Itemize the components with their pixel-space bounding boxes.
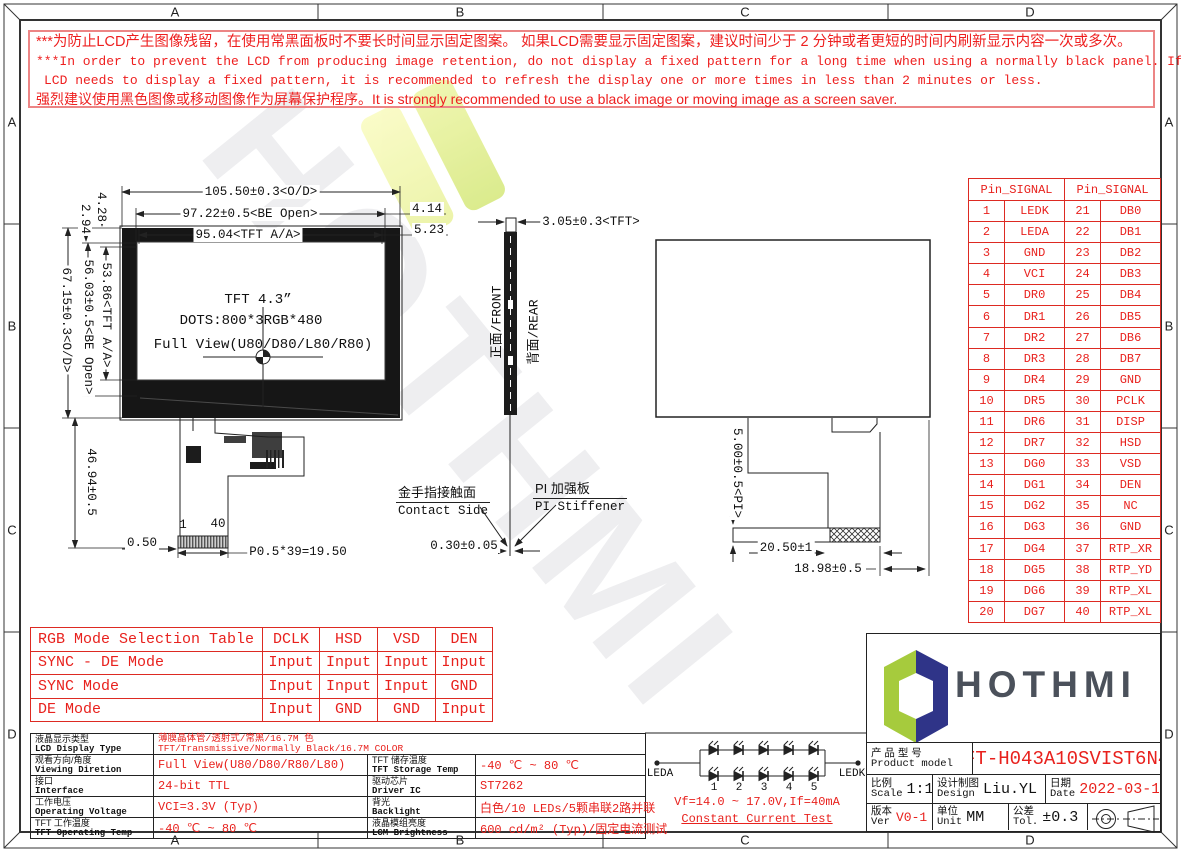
pin-signal: DB2 bbox=[1101, 243, 1161, 264]
design-label-en: Design bbox=[937, 789, 979, 800]
rgb-mode-selection-table: RGB Mode Selection Table DCLK HSD VSD DE… bbox=[30, 627, 493, 722]
pin-no: 34 bbox=[1065, 475, 1101, 496]
spec-row: 接口 Interface 24-bit TTL 驱动芯片 Driver IC S… bbox=[31, 776, 646, 797]
pin-no: 17 bbox=[969, 538, 1005, 559]
spec-label: 观看方向/角度 Viewing Diretion bbox=[31, 755, 154, 776]
zone-label-right-c: C bbox=[1164, 523, 1173, 538]
spec-label-en: TFT Storage Temp bbox=[372, 765, 475, 775]
dim-be-height: 56.03±0.5<BE Open> bbox=[81, 257, 95, 396]
pin-number-last: 40 bbox=[208, 517, 227, 531]
scale-value: 1:1 bbox=[907, 781, 933, 798]
dim-gap-414: 4.14 bbox=[410, 202, 444, 216]
pin-signal: DB3 bbox=[1101, 264, 1161, 285]
led-number: 2 bbox=[736, 782, 743, 794]
rgb-cell: GND bbox=[436, 675, 493, 699]
pin-row: 13DG033VSD bbox=[969, 454, 1161, 475]
pin-no: 2 bbox=[969, 222, 1005, 243]
unit-label-en: Unit bbox=[937, 817, 962, 828]
led-number: 4 bbox=[786, 782, 793, 794]
dim-fpc-edge: 0.50 bbox=[125, 536, 159, 550]
spec-value: 600 cd/m² (Typ)/固定电流测试 bbox=[476, 818, 646, 839]
zone-label-top-c: C bbox=[740, 5, 749, 20]
dim-od-width: 105.50±0.3<O/D> bbox=[203, 185, 320, 199]
panel-view-text: Full View(U80/D80/L80/R80) bbox=[152, 337, 374, 353]
spec-table: 液晶显示类型 LCD Display Type 薄膜晶体管/透射式/常黑/16.… bbox=[30, 733, 646, 839]
pin-signal: DB5 bbox=[1101, 306, 1161, 327]
spec-row: 观看方向/角度 Viewing Diretion Full View(U80/D… bbox=[31, 755, 646, 776]
pin-row: 9DR429GND bbox=[969, 369, 1161, 390]
spec-label-en: Backlight bbox=[372, 807, 475, 817]
pin-signal: DR2 bbox=[1005, 327, 1065, 348]
rgb-row: DE Mode Input GND GND Input bbox=[31, 698, 493, 722]
warning-line-4: 强烈建议使用黑色图像或移动图像作为屏幕保护程序。It is strongly r… bbox=[36, 90, 1147, 109]
spec-label: 工作电压 Operating Voltage bbox=[31, 797, 154, 818]
pin-no: 37 bbox=[1065, 538, 1101, 559]
rgb-col-vsd: VSD bbox=[378, 628, 436, 652]
spec-label-cn: 工作电压 bbox=[35, 797, 153, 807]
spec-label-en: LCD Display Type bbox=[35, 744, 153, 754]
pin-no: 5 bbox=[969, 285, 1005, 306]
image-retention-warning: ***为防止LCD产生图像残留，在使用常黑面板时不要长时间显示固定图案。 如果L… bbox=[28, 30, 1155, 108]
scale-label-en: Scale bbox=[871, 789, 903, 800]
rgb-col-hsd: HSD bbox=[320, 628, 378, 652]
pin-signal: DISP bbox=[1101, 411, 1161, 432]
pi-stiffener-en: PI Stiffener bbox=[533, 499, 627, 514]
pin-signal: RTP_XL bbox=[1101, 580, 1161, 601]
rgb-cell: Input bbox=[436, 651, 493, 675]
led-vf-spec: Vf=14.0 ~ 17.0V,If=40mA bbox=[674, 795, 840, 809]
zone-label-left-b: B bbox=[8, 319, 17, 334]
panel-size-text: TFT 4.3” bbox=[222, 292, 293, 308]
pin-table-header: Pin_SIGNAL Pin_SIGNAL bbox=[969, 179, 1161, 201]
spec-label-en: Viewing Diretion bbox=[35, 765, 153, 775]
rgb-cell: Input bbox=[436, 698, 493, 722]
spec-label-en: Interface bbox=[35, 786, 153, 796]
spec-row: TFT 工作温度 TFT Operating Temp -40 ℃ ~ 80 ℃… bbox=[31, 818, 646, 839]
unit-value: MM bbox=[966, 809, 984, 826]
pin-no: 35 bbox=[1065, 496, 1101, 517]
spec-label-cn: 接口 bbox=[35, 776, 153, 786]
spec-label-en: TFT Operating Temp bbox=[35, 828, 153, 838]
rgb-mode-name: DE Mode bbox=[31, 698, 263, 722]
pin-no: 16 bbox=[969, 517, 1005, 538]
dim-pi-height: 5.00±0.5<PI> bbox=[730, 426, 744, 520]
zone-label-left-c: C bbox=[7, 523, 16, 538]
pin-no: 13 bbox=[969, 454, 1005, 475]
spec-label: TFT 工作温度 TFT Operating Temp bbox=[31, 818, 154, 839]
tolerance-label-en: Tol. bbox=[1013, 817, 1038, 828]
pin-signal: DR4 bbox=[1005, 369, 1065, 390]
pin-no: 7 bbox=[969, 327, 1005, 348]
pin-no: 6 bbox=[969, 306, 1005, 327]
spec-label: 液晶显示类型 LCD Display Type bbox=[31, 734, 154, 755]
spec-label-cn: 观看方向/角度 bbox=[35, 755, 153, 765]
spec-label-cn: 液晶模组亮度 bbox=[372, 818, 475, 828]
pin-row: 2LEDA22DB1 bbox=[969, 222, 1161, 243]
pin-no: 36 bbox=[1065, 517, 1101, 538]
spec-row: 液晶显示类型 LCD Display Type 薄膜晶体管/透射式/常黑/16.… bbox=[31, 734, 646, 755]
spec-label-cn: TFT 工作温度 bbox=[35, 818, 153, 828]
unit-cell: 单位 Unit MM bbox=[933, 804, 1009, 830]
dim-fpc-width: 18.98±0.5 bbox=[792, 562, 864, 576]
pin-signal: DR6 bbox=[1005, 411, 1065, 432]
spec-label: 液晶模组亮度 LCM Brightness bbox=[368, 818, 476, 839]
zone-label-left-a: A bbox=[8, 115, 17, 130]
pin-signal: DG1 bbox=[1005, 475, 1065, 496]
date-value: 2022-03-10 bbox=[1079, 781, 1159, 798]
panel-dots-text: DOTS:800*3RGB*480 bbox=[178, 313, 325, 329]
spec-label: 驱动芯片 Driver IC bbox=[368, 776, 476, 797]
spec-label-cn: 液晶显示类型 bbox=[35, 734, 153, 744]
pin-signal: DG0 bbox=[1005, 454, 1065, 475]
led-number: 3 bbox=[761, 782, 768, 794]
pin-signal: DG6 bbox=[1005, 580, 1065, 601]
date-cell: 日期 Date 2022-03-10 bbox=[1046, 775, 1159, 803]
spec-label-en: Operating Voltage bbox=[35, 807, 153, 817]
rgb-cell: Input bbox=[320, 651, 378, 675]
spec-label-cn: TFT 储存温度 bbox=[372, 755, 475, 765]
pin-row: 4VCI24DB3 bbox=[969, 264, 1161, 285]
pin-signal: DB1 bbox=[1101, 222, 1161, 243]
pin-signal: DR5 bbox=[1005, 390, 1065, 411]
pin-row: 18DG538RTP_YD bbox=[969, 559, 1161, 580]
warning-line-1: ***为防止LCD产生图像残留，在使用常黑面板时不要长时间显示固定图案。 如果L… bbox=[36, 33, 1147, 52]
pin-signal: DG7 bbox=[1005, 601, 1065, 622]
pin-signal: DB0 bbox=[1101, 201, 1161, 222]
designer-value: Liu.YL bbox=[983, 781, 1037, 798]
pin-row: 14DG134DEN bbox=[969, 475, 1161, 496]
spec-value-en: TFT/Transmissive/Normally Black/16.7M CO… bbox=[158, 744, 645, 754]
date-label-en: Date bbox=[1050, 789, 1075, 800]
pi-stiffener-cn: PI 加强板 bbox=[533, 478, 627, 499]
pin-no: 14 bbox=[969, 475, 1005, 496]
pi-stiffener-callout: PI 加强板 PI Stiffener bbox=[533, 478, 627, 514]
pin-no: 31 bbox=[1065, 411, 1101, 432]
rgb-col-dclk: DCLK bbox=[263, 628, 320, 652]
pin-no: 20 bbox=[969, 601, 1005, 622]
zone-label-top-d: D bbox=[1025, 5, 1034, 20]
pin-no: 8 bbox=[969, 348, 1005, 369]
spec-label-cn: 背光 bbox=[372, 797, 475, 807]
spec-value: ST7262 bbox=[476, 776, 646, 797]
pin-signal: DB6 bbox=[1101, 327, 1161, 348]
spec-value: Full View(U80/D80/R80/L80) bbox=[154, 755, 368, 776]
pin-row: 8DR328DB7 bbox=[969, 348, 1161, 369]
pin-signal: DB4 bbox=[1101, 285, 1161, 306]
dim-aa-height: 53.86<TFT A/A> bbox=[99, 260, 113, 369]
dim-aa-width: 95.04<TFT A/A> bbox=[193, 228, 302, 242]
scale-cell: 比例 Scale 1:1 bbox=[867, 775, 933, 803]
pin-row: 15DG235NC bbox=[969, 496, 1161, 517]
pin-row: 16DG336GND bbox=[969, 517, 1161, 538]
side-rear-label: 背面/REAR bbox=[523, 297, 542, 366]
pin-signal: LEDK bbox=[1005, 201, 1065, 222]
pin-signal: DR3 bbox=[1005, 348, 1065, 369]
rgb-cell: Input bbox=[378, 675, 436, 699]
pin-row: 19DG639RTP_XL bbox=[969, 580, 1161, 601]
rgb-header-row: RGB Mode Selection Table DCLK HSD VSD DE… bbox=[31, 628, 493, 652]
projection-symbol-cell bbox=[1088, 804, 1160, 830]
spec-value: -40 ℃ ~ 80 ℃ bbox=[476, 755, 646, 776]
version-label-en: Ver bbox=[871, 817, 892, 828]
spec-row: 工作电压 Operating Voltage VCI=3.3V (Typ) 背光… bbox=[31, 797, 646, 818]
rgb-cell: Input bbox=[263, 651, 320, 675]
product-model-label-cell: 产 品 型 号 Product model bbox=[867, 743, 973, 774]
pin-signal-table: Pin_SIGNAL Pin_SIGNAL 1LEDK21DB0 2LEDA22… bbox=[968, 178, 1161, 623]
pin-no: 12 bbox=[969, 433, 1005, 454]
zone-label-bottom-d: D bbox=[1025, 833, 1034, 848]
spec-label-en: LCM Brightness bbox=[372, 828, 475, 838]
product-label-cn: 产 品 型 号 bbox=[871, 748, 953, 759]
rgb-row: SYNC Mode Input Input Input GND bbox=[31, 675, 493, 699]
zone-label-right-b: B bbox=[1165, 319, 1174, 334]
rgb-col-den: DEN bbox=[436, 628, 493, 652]
spec-label: TFT 储存温度 TFT Storage Temp bbox=[368, 755, 476, 776]
rgb-mode-name: SYNC Mode bbox=[31, 675, 263, 699]
pin-no: 27 bbox=[1065, 327, 1101, 348]
rgb-table-title: RGB Mode Selection Table bbox=[31, 628, 263, 652]
pin-signal: DB7 bbox=[1101, 348, 1161, 369]
tolerance-cell: 公差 Tol. ±0.3 bbox=[1009, 804, 1088, 830]
pin-no: 23 bbox=[1065, 243, 1101, 264]
pin-signal: RTP_XL bbox=[1101, 601, 1161, 622]
pin-no: 30 bbox=[1065, 390, 1101, 411]
version-cell: 版本 Ver V0-1 bbox=[867, 804, 933, 830]
product-label-en: Product model bbox=[871, 759, 953, 770]
rgb-cell: Input bbox=[263, 698, 320, 722]
pin-signal: RTP_YD bbox=[1101, 559, 1161, 580]
spec-value: 白色/10 LEDs/5颗串联2路并联 bbox=[476, 797, 646, 818]
pin-no: 15 bbox=[969, 496, 1005, 517]
rgb-cell: Input bbox=[378, 651, 436, 675]
led-circuit bbox=[645, 733, 866, 781]
pin-row: 10DR530PCLK bbox=[969, 390, 1161, 411]
pin-no: 26 bbox=[1065, 306, 1101, 327]
product-model-value: TFT-H043A10SVIST6N40 bbox=[973, 748, 1160, 770]
spec-value: -40 ℃ ~ 80 ℃ bbox=[154, 818, 368, 839]
pin-row: 17DG437RTP_XR bbox=[969, 538, 1161, 559]
spec-value: 24-bit TTL bbox=[154, 776, 368, 797]
zone-label-top-b: B bbox=[456, 5, 465, 20]
pin-no: 1 bbox=[969, 201, 1005, 222]
pin-no: 11 bbox=[969, 411, 1005, 432]
contact-side-cn: 金手指接触面 bbox=[396, 482, 490, 503]
rgb-mode-name: SYNC - DE Mode bbox=[31, 651, 263, 675]
led-number: 5 bbox=[811, 782, 818, 794]
pin-table-header-right: Pin_SIGNAL bbox=[1065, 179, 1161, 201]
pin-no: 21 bbox=[1065, 201, 1101, 222]
pin-signal: RTP_XR bbox=[1101, 538, 1161, 559]
zone-label-right-a: A bbox=[1165, 115, 1174, 130]
pin-signal: GND bbox=[1101, 517, 1161, 538]
spec-value: 薄膜晶体管/透射式/常黑/16.7M 色 TFT/Transmissive/No… bbox=[154, 734, 646, 755]
pin-signal: DG4 bbox=[1005, 538, 1065, 559]
dim-gap-428: 4.28 bbox=[94, 190, 108, 224]
pin-no: 24 bbox=[1065, 264, 1101, 285]
spec-label: 接口 Interface bbox=[31, 776, 154, 797]
pin-row: 6DR126DB5 bbox=[969, 306, 1161, 327]
pin-signal: DR7 bbox=[1005, 433, 1065, 454]
spec-label: 背光 Backlight bbox=[368, 797, 476, 818]
dim-tft-thickness: 3.05±0.3<TFT> bbox=[540, 215, 642, 229]
zone-label-bottom-c: C bbox=[740, 833, 749, 848]
warning-line-2: ***In order to prevent the LCD from prod… bbox=[36, 52, 1147, 71]
dim-fpc-length: 46.94±0.5 bbox=[84, 446, 98, 518]
rgb-cell: GND bbox=[320, 698, 378, 722]
pin-signal: NC bbox=[1101, 496, 1161, 517]
spec-label-cn: 驱动芯片 bbox=[372, 776, 475, 786]
dim-fpc-thickness: 0.30±0.05 bbox=[428, 539, 500, 553]
pin-no: 28 bbox=[1065, 348, 1101, 369]
version-value: V0-1 bbox=[896, 810, 927, 825]
pin-no: 40 bbox=[1065, 601, 1101, 622]
led-number: 1 bbox=[711, 782, 718, 794]
pin-row: 1LEDK21DB0 bbox=[969, 201, 1161, 222]
pin-signal: DR0 bbox=[1005, 285, 1065, 306]
pin-signal: GND bbox=[1005, 243, 1065, 264]
pin-no: 33 bbox=[1065, 454, 1101, 475]
pin-signal: VCI bbox=[1005, 264, 1065, 285]
spec-value: VCI=3.3V (Typ) bbox=[154, 797, 368, 818]
pin-signal: GND bbox=[1101, 369, 1161, 390]
dim-pin-pitch: P0.5*39=19.50 bbox=[247, 545, 349, 559]
pin-signal: HSD bbox=[1101, 433, 1161, 454]
rear-view bbox=[656, 240, 930, 576]
warning-line-3: LCD needs to display a fixed pattern, it… bbox=[36, 71, 1147, 90]
pin-no: 4 bbox=[969, 264, 1005, 285]
product-model-value-cell: TFT-H043A10SVIST6N40 bbox=[973, 743, 1160, 774]
pin-no: 9 bbox=[969, 369, 1005, 390]
design-cell: 设计制图 Design Liu.YL bbox=[933, 775, 1046, 803]
spec-label-en: Driver IC bbox=[372, 786, 475, 796]
pin-no: 10 bbox=[969, 390, 1005, 411]
dim-be-width: 97.22±0.5<BE Open> bbox=[180, 207, 319, 221]
pin-no: 29 bbox=[1065, 369, 1101, 390]
pin-no: 38 bbox=[1065, 559, 1101, 580]
pin-no: 18 bbox=[969, 559, 1005, 580]
pin-signal: DG5 bbox=[1005, 559, 1065, 580]
dim-pi-width: 20.50±1 bbox=[758, 541, 815, 555]
pin-signal: LEDA bbox=[1005, 222, 1065, 243]
pin-no: 32 bbox=[1065, 433, 1101, 454]
pin-table-header-left: Pin_SIGNAL bbox=[969, 179, 1065, 201]
led-cathode-label: LEDK bbox=[839, 768, 865, 780]
pin-signal: DEN bbox=[1101, 475, 1161, 496]
logo-cell: HOTHMI bbox=[867, 634, 1160, 743]
side-front-label: 正面/FRONT bbox=[486, 284, 505, 361]
dim-gap-294: 2.94 bbox=[78, 202, 92, 236]
zone-label-right-d: D bbox=[1164, 727, 1173, 742]
pin-number-first: 1 bbox=[177, 518, 189, 532]
zone-label-top-a: A bbox=[171, 5, 180, 20]
zone-label-left-d: D bbox=[7, 727, 16, 742]
dim-gap-523: 5.23 bbox=[412, 223, 446, 237]
rgb-cell: Input bbox=[320, 675, 378, 699]
rgb-cell: GND bbox=[378, 698, 436, 722]
rgb-row: SYNC - DE Mode Input Input Input Input bbox=[31, 651, 493, 675]
pin-signal: PCLK bbox=[1101, 390, 1161, 411]
contact-side-callout: 金手指接触面 Contact Side bbox=[396, 482, 490, 518]
pin-row: 20DG740RTP_XL bbox=[969, 601, 1161, 622]
pin-row: 5DR025DB4 bbox=[969, 285, 1161, 306]
pin-no: 3 bbox=[969, 243, 1005, 264]
pin-row: 7DR227DB6 bbox=[969, 327, 1161, 348]
pin-no: 39 bbox=[1065, 580, 1101, 601]
pin-no: 22 bbox=[1065, 222, 1101, 243]
pin-signal: DG2 bbox=[1005, 496, 1065, 517]
hothmi-brand-text: HOTHMI bbox=[955, 664, 1137, 706]
contact-side-en: Contact Side bbox=[396, 503, 490, 518]
pin-row: 12DR732HSD bbox=[969, 433, 1161, 454]
title-block: HOTHMI 产 品 型 号 Product model TFT-H043A10… bbox=[866, 633, 1161, 832]
pin-no: 25 bbox=[1065, 285, 1101, 306]
dim-od-height: 67.15±0.3<O/D> bbox=[59, 265, 73, 374]
pin-signal: DR1 bbox=[1005, 306, 1065, 327]
pin-signal: VSD bbox=[1101, 454, 1161, 475]
rgb-cell: Input bbox=[263, 675, 320, 699]
pin-row: 11DR631DISP bbox=[969, 411, 1161, 432]
datasheet-page: HOTHMI bbox=[0, 0, 1181, 852]
led-anode-label: LEDA bbox=[647, 768, 673, 780]
pin-no: 19 bbox=[969, 580, 1005, 601]
led-test-note: Constant Current Test bbox=[681, 812, 832, 826]
pin-row: 3GND23DB2 bbox=[969, 243, 1161, 264]
tolerance-value: ±0.3 bbox=[1042, 809, 1078, 826]
pin-signal: DG3 bbox=[1005, 517, 1065, 538]
